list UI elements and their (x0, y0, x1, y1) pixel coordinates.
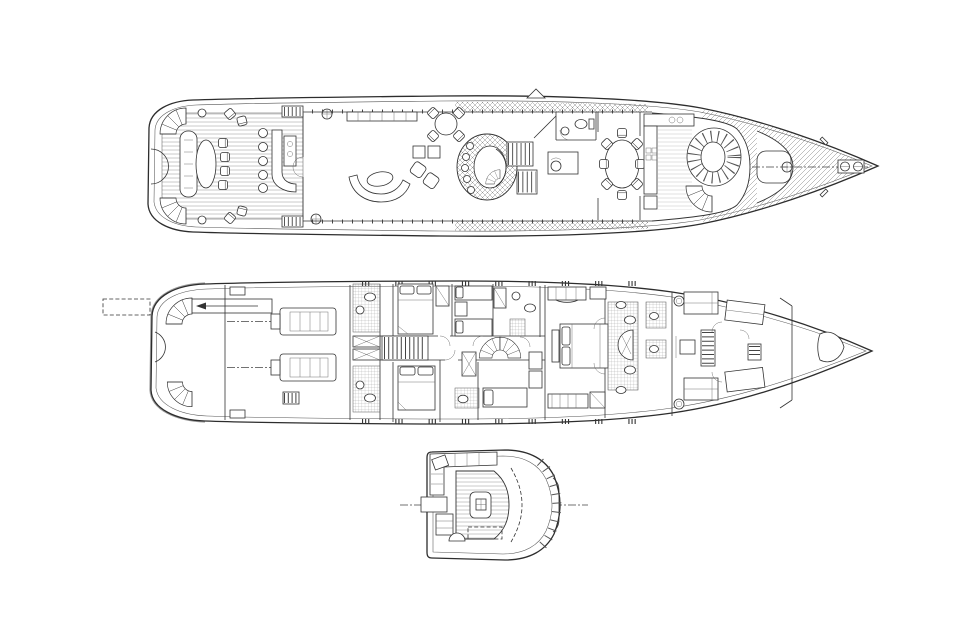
bow-cleat (820, 189, 828, 197)
single-berth (483, 388, 527, 407)
sink (356, 381, 364, 389)
main-deck-plan (148, 89, 878, 236)
dryer (674, 399, 684, 409)
companionway-box (421, 497, 447, 512)
sink (356, 306, 364, 314)
foot-bench (552, 330, 559, 362)
master-cabinet (590, 287, 606, 299)
washing-machine (674, 296, 684, 306)
lower-deck-plan (103, 281, 872, 424)
toilet (458, 395, 468, 403)
sink (512, 292, 520, 300)
cocktail-table (196, 140, 216, 188)
guest-head-starboard (353, 366, 380, 412)
deck-post-starboard (198, 216, 206, 224)
master-sofa (548, 287, 586, 302)
yacht-ga-svg (0, 0, 960, 640)
side-table (413, 146, 425, 158)
desk-chair (551, 161, 561, 171)
helm-chair (470, 492, 491, 518)
day-tank (230, 410, 245, 418)
equipment-cabinet (436, 514, 453, 535)
galley (644, 114, 694, 210)
crew-stairs (701, 330, 715, 366)
toilet (365, 293, 376, 301)
salon-sofa (347, 112, 417, 121)
guest-head-port (353, 284, 380, 332)
sink (650, 313, 659, 320)
master-bed (552, 324, 608, 368)
sink (561, 127, 569, 135)
sink (616, 302, 626, 309)
toilet (365, 394, 376, 402)
toilet (575, 120, 587, 129)
transom-bench (180, 131, 197, 197)
toilet (625, 316, 636, 324)
toilet (525, 304, 536, 312)
mast (527, 89, 545, 98)
master-wardrobe (548, 392, 605, 408)
sink (650, 346, 659, 353)
guest-cabin-double-fwd (398, 366, 435, 410)
side-table (428, 146, 440, 158)
day-tank (230, 287, 245, 295)
deck-post-port (198, 109, 206, 117)
fwd-steps (748, 344, 761, 360)
bidet (625, 366, 636, 374)
sink (616, 387, 626, 394)
yacht-ga-sheet (0, 0, 960, 640)
nightstand (455, 302, 467, 316)
engine-room-ladder (283, 392, 299, 404)
wheelhouse-plan (400, 450, 588, 560)
corridor-stairs (382, 336, 428, 360)
